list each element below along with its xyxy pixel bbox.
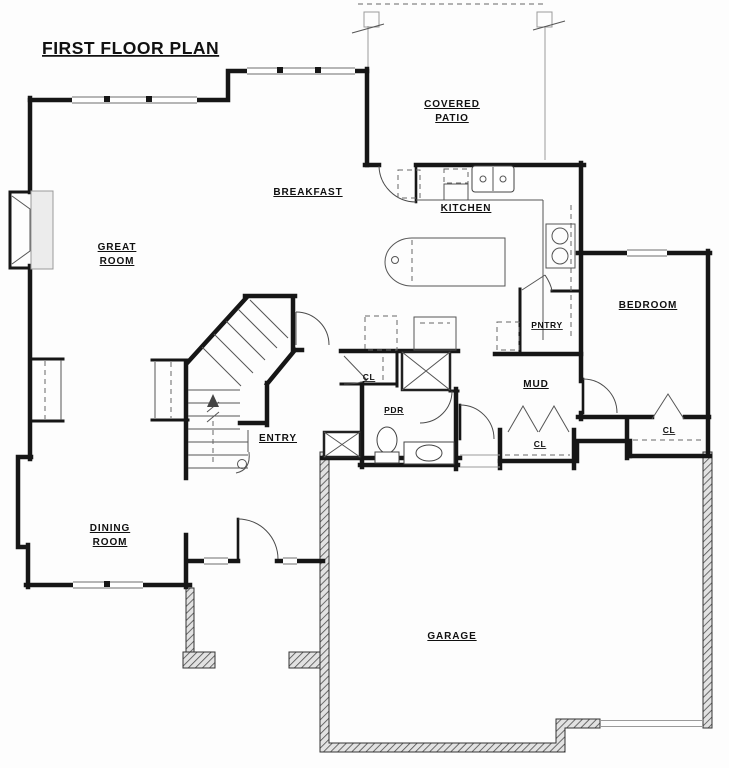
hall-door-arc: [460, 405, 494, 439]
oven-burner-2: [552, 248, 568, 264]
label-great-room-2: ROOM: [100, 256, 135, 267]
garage-entry-threshold: [460, 455, 500, 467]
garage-top-interior-wall: [322, 441, 630, 461]
pantry-door-leaf: [522, 275, 545, 290]
doors: [238, 165, 684, 559]
toilet-bowl: [377, 427, 397, 453]
window-dining-bottom: [73, 581, 143, 590]
oven-burner-1: [552, 228, 568, 244]
pantry-door-arc: [545, 275, 552, 291]
label-garage: GARAGE: [427, 631, 476, 642]
left-wall-niche: [31, 359, 63, 421]
left-wall-dining-jog: [18, 457, 31, 587]
floor-plan-page: FIRST FLOOR PLAN COVERED PATIO GREAT ROO…: [0, 0, 729, 768]
garage-door-opening: [600, 721, 703, 727]
patio-corner-ticks: [352, 21, 565, 33]
label-closet-entry: CL: [363, 372, 376, 382]
bedroom-wing-top-wall: [578, 163, 710, 253]
label-bedroom: BEDROOM: [619, 300, 678, 311]
label-kitchen: KITCHEN: [441, 203, 492, 214]
buffet-dashed-left: [365, 316, 397, 350]
label-great-room-1: GREAT: [98, 242, 137, 253]
powder-fixtures: [375, 427, 454, 464]
garage-walls: [320, 452, 712, 752]
label-mud: MUD: [523, 379, 548, 390]
stair-newel: [238, 460, 247, 469]
buffet-box-right: [414, 317, 456, 350]
fireplace: [12, 191, 53, 269]
stair-closet-door-arc: [296, 312, 329, 345]
cabinet-dashed: [444, 169, 468, 183]
bedroom-closet-bifold: [652, 394, 684, 419]
window-bedroom-top: [627, 249, 667, 258]
plan-title: FIRST FLOOR PLAN: [42, 38, 219, 58]
stair-up-arrow: [207, 394, 219, 407]
label-pantry: PNTRY: [531, 320, 563, 330]
label-covered-patio-1: COVERED: [424, 99, 480, 110]
label-entry: ENTRY: [259, 433, 297, 444]
vanity-sink: [416, 445, 442, 461]
counter-edge: [416, 200, 543, 340]
bedroom-door-arc: [583, 379, 617, 413]
staircase: [186, 296, 302, 478]
floor-plan-drawing: FIRST FLOOR PLAN COVERED PATIO GREAT ROO…: [0, 0, 729, 768]
window-greatroom-top: [72, 96, 197, 105]
exterior-walls: [10, 69, 710, 587]
stair-inner-walls: [186, 350, 295, 478]
fireplace-hearth: [31, 191, 53, 269]
garage-right-wall: [703, 452, 712, 728]
fireplace-bump: [10, 192, 31, 268]
porch-pillar-left: [183, 652, 215, 668]
window-breakfast-top: [247, 67, 355, 76]
kitchen-island: [385, 238, 505, 286]
garage-wall-band: [320, 452, 600, 752]
label-powder-room: PDR: [384, 405, 404, 415]
front-porch: [183, 588, 320, 668]
powder-door-arc: [420, 391, 452, 423]
porch-left-wall: [186, 588, 194, 652]
chase-small: [324, 432, 360, 457]
sidelite-front-right: [283, 557, 297, 566]
butler-counter-dashed: [497, 322, 519, 350]
patio-post-left: [364, 12, 379, 27]
label-breakfast: BREAKFAST: [273, 187, 342, 198]
hall-top-walls: [341, 351, 581, 354]
toilet-tank: [375, 452, 399, 463]
patio-side-lines: [368, 26, 545, 160]
label-covered-patio-2: PATIO: [435, 113, 469, 124]
stair-side-niche: [152, 360, 188, 420]
label-closet-bedroom: CL: [663, 425, 676, 435]
sidelite-front-left: [204, 557, 228, 566]
patio-post-right: [537, 12, 552, 27]
label-dining-room-2: ROOM: [93, 537, 128, 548]
range-box: [444, 184, 468, 200]
covered-patio-outline: [352, 4, 565, 160]
front-door-arc: [238, 519, 278, 559]
chase-large: [402, 352, 450, 390]
stair-lower-treads: [188, 390, 248, 468]
hall-closet-bifold: [508, 406, 569, 432]
stair-outer-walls: [188, 296, 302, 362]
porch-pillar-right: [289, 652, 320, 668]
windows: [72, 67, 667, 590]
fireplace-firebox: [12, 196, 30, 264]
label-closet-hall: CL: [534, 439, 547, 449]
label-dining-room-1: DINING: [90, 523, 130, 534]
